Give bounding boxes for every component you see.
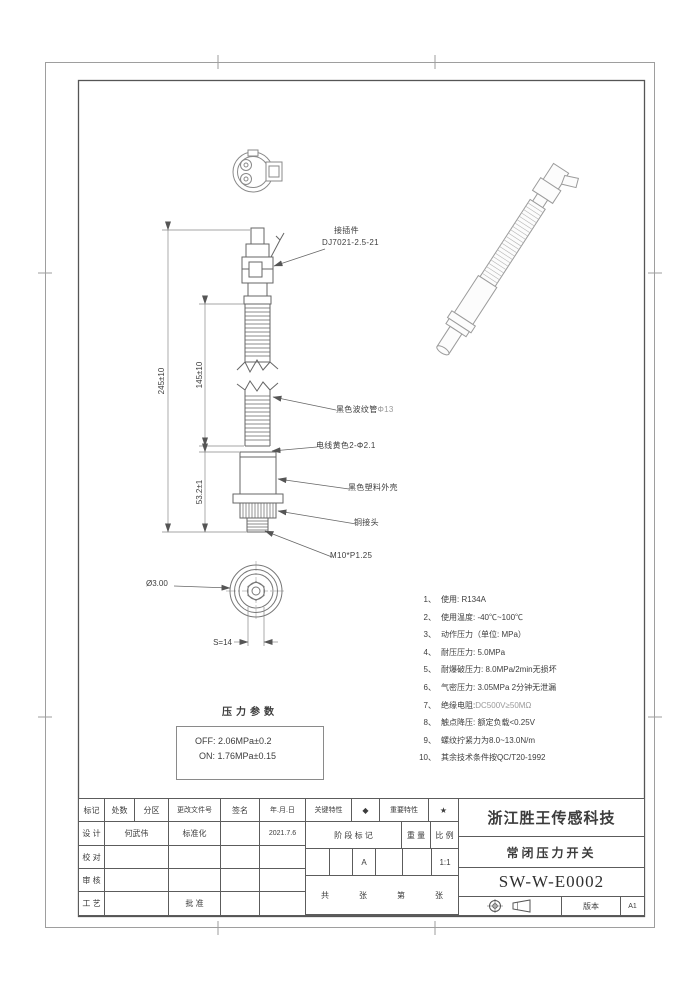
note-text: 其余技术条件按QC/T20-1992 [441,749,545,767]
projection-symbol-icon [486,899,534,913]
title-block-stage-section: 关键特性 ◆ 重要特性 ★ 阶 段 标 记 重 量 比 例 A 1:1 共 [306,799,458,915]
note-number: 10、 [418,749,436,767]
callout-corrugated-tube-size: Φ13 [378,405,394,414]
projection-symbol-cell [459,897,561,915]
stage-cell-2 [330,849,352,875]
note-row: 8、触点降压: 额定负载<0.25V [418,714,663,732]
note-number: 6、 [418,679,436,697]
note-text: 触点降压: 额定负载<0.25V [441,714,535,732]
dim-tube-length: 145±10 [195,361,204,388]
role-standardization: 标准化 [169,822,220,845]
pressure-params-title: 压力参数 [176,703,324,718]
header-doc-no: 更改文件号 [169,799,220,821]
note-text: 螺纹拧紧力为8.0~13.0N/m [441,732,535,750]
note-text: 耐爆破压力: 8.0MPa/2min无损坏 [441,661,557,679]
scale-value: 1:1 [432,849,458,875]
note-number: 9、 [418,732,436,750]
note-row: 4、耐压压力: 5.0MPa [418,644,663,662]
key-characteristic-label: 关键特性 [306,799,351,821]
role-review: 审 核 [79,869,104,891]
role-process: 工 艺 [79,892,104,915]
callout-connector-name: 接插件 [334,225,359,236]
title-block: 标记 处数 分区 更改文件号 签名 年.月.日 设 计 何武伟 标准化 2021… [78,798,645,916]
check-name [105,846,168,868]
pressure-off-value: OFF: 2.06MPa±0.2 [177,727,323,746]
note-text: 使用温度: -40℃~100℃ [441,609,523,627]
stage-cell-4 [376,849,402,875]
callout-wire: 电线黄色2-Φ2.1 [316,440,376,451]
note-number: 7、 [418,697,436,715]
review-date [260,869,305,891]
note-number: 4、 [418,644,436,662]
note-number: 5、 [418,661,436,679]
callout-connector-partno: DJ7021-2.5-21 [322,238,379,247]
role-approve: 批 准 [169,892,220,915]
review-sign [221,869,259,891]
approve-date [260,892,305,915]
note-text: 气密压力: 3.05MPa 2分钟无泄漏 [441,679,556,697]
company-name: 浙江胜王传感科技 [459,799,644,836]
version-label: 版本 [562,897,620,915]
bottom-face-view [226,561,286,621]
approve-sign [221,892,259,915]
role-design: 设 计 [79,822,104,845]
note-number: 8、 [418,714,436,732]
note-text: 使用: R134A [441,591,486,609]
stage-mark-label: 阶 段 标 记 [306,822,401,848]
weight-label: 重 量 [402,822,430,848]
sheet-count-row: 共 张 第 张 [306,876,458,914]
header-mark: 标记 [79,799,104,821]
process-name [105,892,168,915]
dim-overall-length: 245±10 [157,367,166,394]
note-text: 绝缘电阻: [441,697,475,715]
callout-plastic-housing: 黑色塑料外壳 [348,482,398,493]
callout-thread: M10*P1.25 [330,551,372,560]
title-block-revision-table: 标记 处数 分区 更改文件号 签名 年.月.日 设 计 何武伟 标准化 2021… [79,799,305,915]
connector-face-view [233,150,282,192]
header-count: 处数 [105,799,134,821]
note-text: 动作压力（单位: MPa） [441,626,526,644]
isometric-view [430,160,581,365]
check-sign [221,846,259,868]
important-characteristic-label: 重要特性 [380,799,428,821]
important-characteristic-symbol: ★ [429,799,458,821]
stage-mark-value: A [353,849,375,875]
stage-cell-1 [306,849,329,875]
design-date: 2021.7.6 [260,822,305,845]
dim-lower-length: 53.2±1 [195,479,204,504]
note-row: 6、气密压力: 3.05MPa 2分钟无泄漏 [418,679,663,697]
header-date: 年.月.日 [260,799,305,821]
callout-corrugated-tube-text: 黑色波纹管 [336,405,378,414]
version-value: A1 [621,897,644,915]
front-view [233,228,284,532]
note-row: 1、使用: R134A [418,591,663,609]
note-row: 10、其余技术条件按QC/T20-1992 [418,749,663,767]
review-name [105,869,168,891]
title-block-product-section: 浙江胜王传感科技 常闭压力开关 SW-W-E0002 [459,799,644,915]
dim-hex-width: S=14 [213,638,232,647]
dim-hole-diameter: Ø3.00 [146,579,168,588]
note-row: 5、耐爆破压力: 8.0MPa/2min无损坏 [418,661,663,679]
note-row: 2、使用温度: -40℃~100℃ [418,609,663,627]
callout-corrugated-tube: 黑色波纹管Φ13 [336,404,394,415]
inner-border [79,81,645,917]
drawing-sheet: 245±10 145±10 53.2±1 Ø3.00 S=14 接插件 DJ70… [0,0,700,991]
sheet-page-label: 第 [397,890,405,901]
product-name: 常闭压力开关 [459,837,644,867]
check-blank [169,846,220,868]
sheet-total-label: 共 [321,890,329,901]
pressure-on-value: ON: 1.76MPa±0.15 [177,746,323,761]
role-check: 校 对 [79,846,104,868]
sheet-total-unit: 张 [359,890,367,901]
note-row: 3、动作压力（单位: MPa） [418,626,663,644]
note-row: 7、绝缘电阻: DC500V≥50MΩ [418,697,663,715]
scale-label: 比 例 [431,822,458,848]
note-row: 9、螺纹拧紧力为8.0~13.0N/m [418,732,663,750]
header-signature: 签名 [221,799,259,821]
check-date [260,846,305,868]
key-characteristic-symbol: ◆ [352,799,379,821]
note-text: 耐压压力: 5.0MPa [441,644,505,662]
sheet-page-unit: 张 [435,890,443,901]
callout-copper-joint: 铜接头 [354,517,379,528]
note-number: 2、 [418,609,436,627]
designer-name: 何武伟 [105,822,168,845]
weight-value [403,849,431,875]
note-number: 1、 [418,591,436,609]
note-number: 3、 [418,626,436,644]
header-zone: 分区 [135,799,168,821]
review-blank [169,869,220,891]
note-text-grey: DC500V≥50MΩ [475,697,531,715]
dimension-texts: 245±10 145±10 53.2±1 Ø3.00 S=14 [146,361,233,647]
drawing-number: SW-W-E0002 [459,868,644,896]
standardization-sign [221,822,259,845]
pressure-params-box: OFF: 2.06MPa±0.2 ON: 1.76MPa±0.15 [176,726,324,780]
technical-notes-list: 1、使用: R134A 2、使用温度: -40℃~100℃ 3、动作压力（单位:… [418,591,663,767]
